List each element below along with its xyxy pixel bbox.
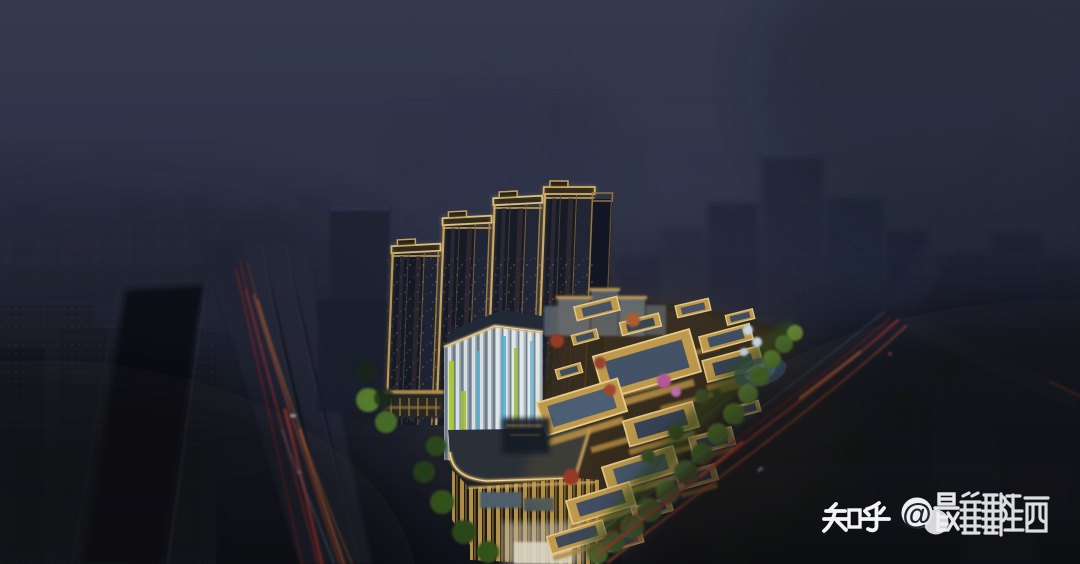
svg-text:@: @ [902, 498, 931, 531]
